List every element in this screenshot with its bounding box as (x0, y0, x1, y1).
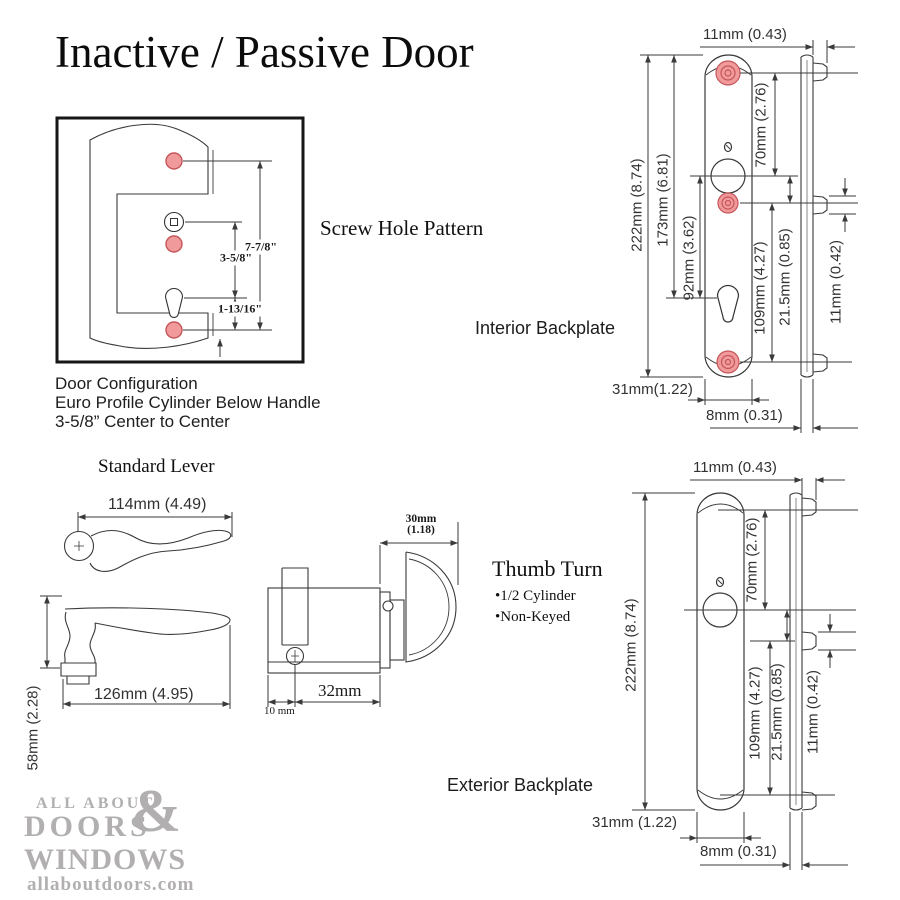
cylinder-dim-turn-depth: 30mm (1.18) (406, 514, 437, 536)
exterior-dim-tab-depth: 11mm (0.43) (693, 459, 777, 476)
interior-backplate-heading: Interior Backplate (475, 318, 615, 339)
exterior-backplate-heading: Exterior Backplate (447, 775, 593, 796)
interior-dimension-lines (640, 40, 858, 433)
door-config-line2: Euro Profile Cylinder Below Handle (55, 393, 321, 412)
screw-hole-pattern-heading: Screw Hole Pattern (320, 216, 483, 241)
standard-lever-heading: Standard Lever (98, 456, 215, 478)
interior-dim-plate-width: 31mm(1.22) (612, 381, 693, 398)
screw-hole-bottom (166, 322, 182, 338)
interior-side-view (801, 55, 827, 377)
cylinder-cam (282, 568, 308, 645)
lever-top-outline (90, 530, 231, 571)
page-title: Inactive / Passive Door (55, 26, 474, 78)
lever-dim-side-height: 58mm (2.28) (25, 685, 42, 770)
exterior-dim-plate-width: 31mm (1.22) (592, 814, 677, 831)
interior-dim-tab-depth: 11mm (0.43) (703, 26, 787, 43)
interior-dim-top-to-cylinder: 173mm (6.81) (655, 153, 672, 246)
interior-backplate-drawing (640, 40, 858, 433)
thumb-turn-bullet-2: •Non-Keyed (495, 609, 570, 626)
logo-line3: WINDOWS (24, 843, 186, 877)
exterior-plate-outline (697, 493, 744, 810)
lever-collar (61, 663, 96, 676)
interior-euro-keyhole (718, 286, 739, 323)
cylinder-dim-turn-depth-line2: (1.18) (406, 525, 437, 536)
cylinder-body (268, 588, 380, 673)
screw-hole-middle (166, 236, 182, 252)
door-edge-outline (90, 124, 208, 348)
cylinder-dim-body-length: 32mm (318, 681, 361, 701)
diagram-page: Inactive / Passive Door Screw Hole Patte… (0, 0, 900, 900)
door-config-line1: Door Configuration (55, 374, 198, 393)
thumb-turn-heading: Thumb Turn (492, 556, 603, 582)
interior-plate-holes (711, 61, 745, 373)
spindle-hole (165, 213, 184, 232)
dim-label-1-13-16: 1-13/16" (216, 302, 264, 317)
lever-dim-top-width: 114mm (4.49) (108, 496, 206, 514)
cylinder-dim-edge-offset: 10 mm (264, 705, 295, 717)
interior-dim-tab-height: 11mm (0.42) (828, 240, 845, 324)
exterior-dim-total-height: 222mm (8.74) (623, 598, 640, 691)
interior-dim-total-height: 222mm (8.74) (629, 158, 646, 251)
exterior-dim-plate-depth: 8mm (0.31) (700, 843, 777, 860)
exterior-dim-post-to-center: 70mm (2.76) (744, 517, 761, 602)
exterior-dim-center-to-bottom: 109mm (4.27) (747, 666, 764, 759)
logo-line2: DOORS (24, 810, 151, 844)
lever-spindle (67, 676, 89, 684)
interior-dim-plate-depth: 8mm (0.31) (706, 407, 783, 424)
exterior-dim-center-offset: 21.5mm (0.85) (769, 663, 786, 761)
dim-label-3-5-8: 3-5/8" (218, 251, 254, 266)
thumb-turn-bullet-1: •1/2 Cylinder (495, 588, 576, 605)
interior-dim-screw-to-handle: 70mm (2.76) (753, 82, 770, 167)
lever-dim-side-length: 126mm (4.95) (94, 686, 194, 704)
door-config-line3: 3-5/8” Center to Center (55, 412, 230, 431)
interior-plate-outline (705, 55, 752, 377)
exterior-side-view (790, 493, 816, 810)
interior-dim-handle-to-bottom: 109mm (4.27) (752, 241, 769, 334)
cylinder-drawing (268, 522, 458, 707)
interior-dim-handle-offset: 21.5mm (0.85) (777, 228, 794, 326)
exterior-dim-tab-height: 11mm (0.42) (805, 670, 822, 754)
interior-dim-handle-to-cylinder: 92mm (3.62) (681, 215, 698, 300)
screw-hole-top (166, 153, 182, 169)
lever-top-view-drawing (65, 512, 233, 571)
lever-side-grip (65, 608, 230, 635)
logo-site: allaboutdoors.com (27, 874, 194, 896)
